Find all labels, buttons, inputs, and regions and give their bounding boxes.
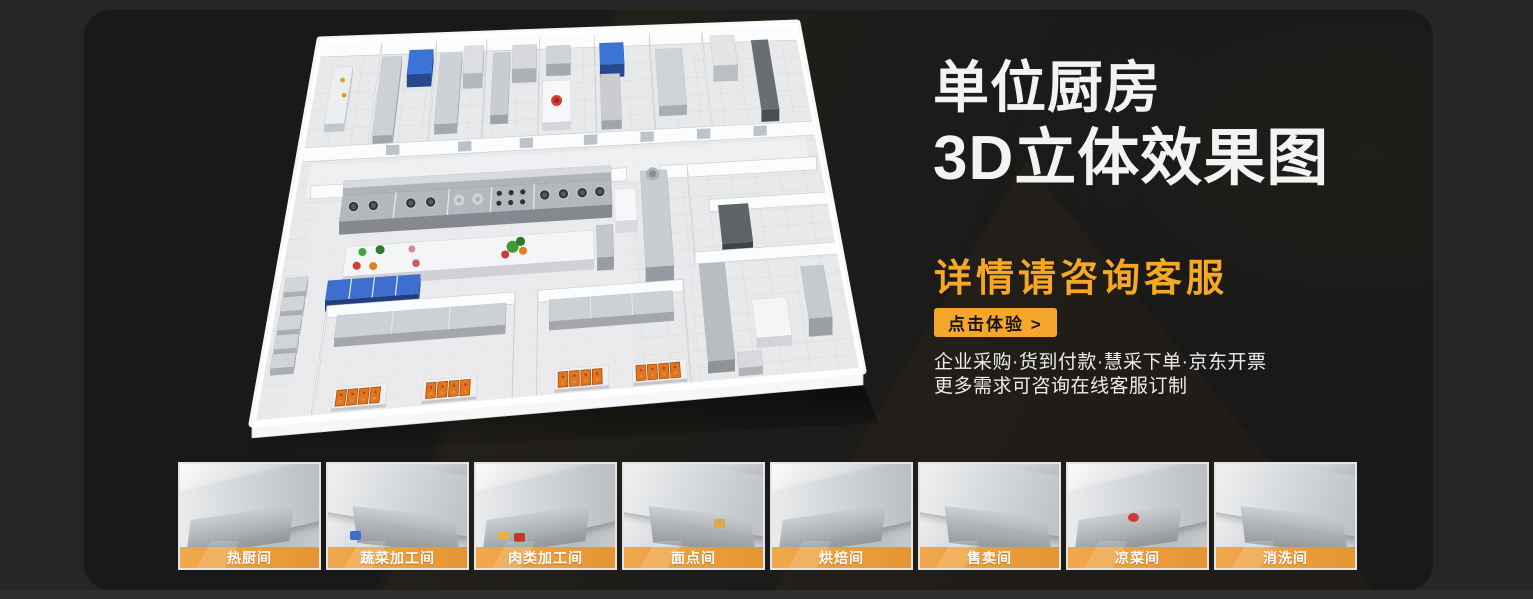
gallery-item-cold-dish-room[interactable]: 凉菜间	[1066, 462, 1209, 570]
thumbnail-accent	[498, 531, 509, 540]
thumbnail-label-bar: 烘焙间	[772, 547, 911, 568]
thumbnail-label: 肉类加工间	[508, 548, 583, 568]
thumbnail-label: 蔬菜加工间	[360, 548, 435, 568]
thumbnail-label: 售卖间	[967, 548, 1012, 568]
thumbnail-label: 凉菜间	[1115, 548, 1160, 568]
thumbnail-label-bar: 蔬菜加工间	[328, 547, 467, 568]
hero-info-line2: 更多需求可咨询在线客服订制	[934, 375, 1266, 399]
gallery-item-washing-room[interactable]: 消洗间	[1214, 462, 1357, 570]
hero-info: 企业采购·货到付款·慧采下单·京东开票 更多需求可咨询在线客服订制	[934, 351, 1266, 398]
gallery-item-meat-processing[interactable]: 肉类加工间	[474, 462, 617, 570]
gallery-item-pastry-room[interactable]: 面点间	[622, 462, 765, 570]
gallery-item-vegetable-processing[interactable]: 蔬菜加工间	[326, 462, 469, 570]
thumbnail-label: 热厨间	[227, 548, 272, 568]
thumbnail-label-bar: 消洗间	[1216, 547, 1355, 568]
hero-title-line2: 3D立体效果图	[933, 128, 1329, 190]
gallery-item-baking-room[interactable]: 烘焙间	[770, 462, 913, 570]
thumbnail-label-bar: 面点间	[624, 547, 763, 568]
thumbnail-label-bar: 凉菜间	[1068, 547, 1207, 568]
thumbnail-label-bar: 售卖间	[920, 547, 1059, 568]
thumbnail-accent	[714, 519, 725, 528]
hero-title: 单位厨房 3D立体效果图	[933, 60, 1329, 190]
thumbnail-accent	[350, 531, 361, 540]
thumbnail-label: 烘焙间	[819, 548, 864, 568]
thumbnail-label: 面点间	[671, 548, 716, 568]
cta-button[interactable]: 点击体验 >	[934, 308, 1057, 337]
hero-info-line1: 企业采购·货到付款·慧采下单·京东开票	[934, 351, 1266, 375]
thumbnail-label-bar: 热厨间	[180, 547, 319, 568]
gallery-item-hot-kitchen[interactable]: 热厨间	[178, 462, 321, 570]
thumbnail-label-bar: 肉类加工间	[476, 547, 615, 568]
thumbnail-label: 消洗间	[1263, 548, 1308, 568]
next-section-edge	[0, 590, 1533, 599]
hero-title-line1: 单位厨房	[933, 60, 1329, 116]
banner-canvas: 单位厨房 3D立体效果图 详情请咨询客服 点击体验 > 企业采购·货到付款·慧采…	[0, 0, 1533, 599]
room-gallery: 热厨间 蔬菜加工间 肉类加工间 面点间 烘焙间 售卖间 凉菜间 消洗间	[178, 462, 1357, 570]
hero-subtitle: 详情请咨询客服	[934, 247, 1228, 302]
gallery-item-sales-room[interactable]: 售卖间	[918, 462, 1061, 570]
thumbnail-accent	[1128, 513, 1139, 522]
kitchen-floorplan-3d-illustration	[225, 15, 900, 457]
